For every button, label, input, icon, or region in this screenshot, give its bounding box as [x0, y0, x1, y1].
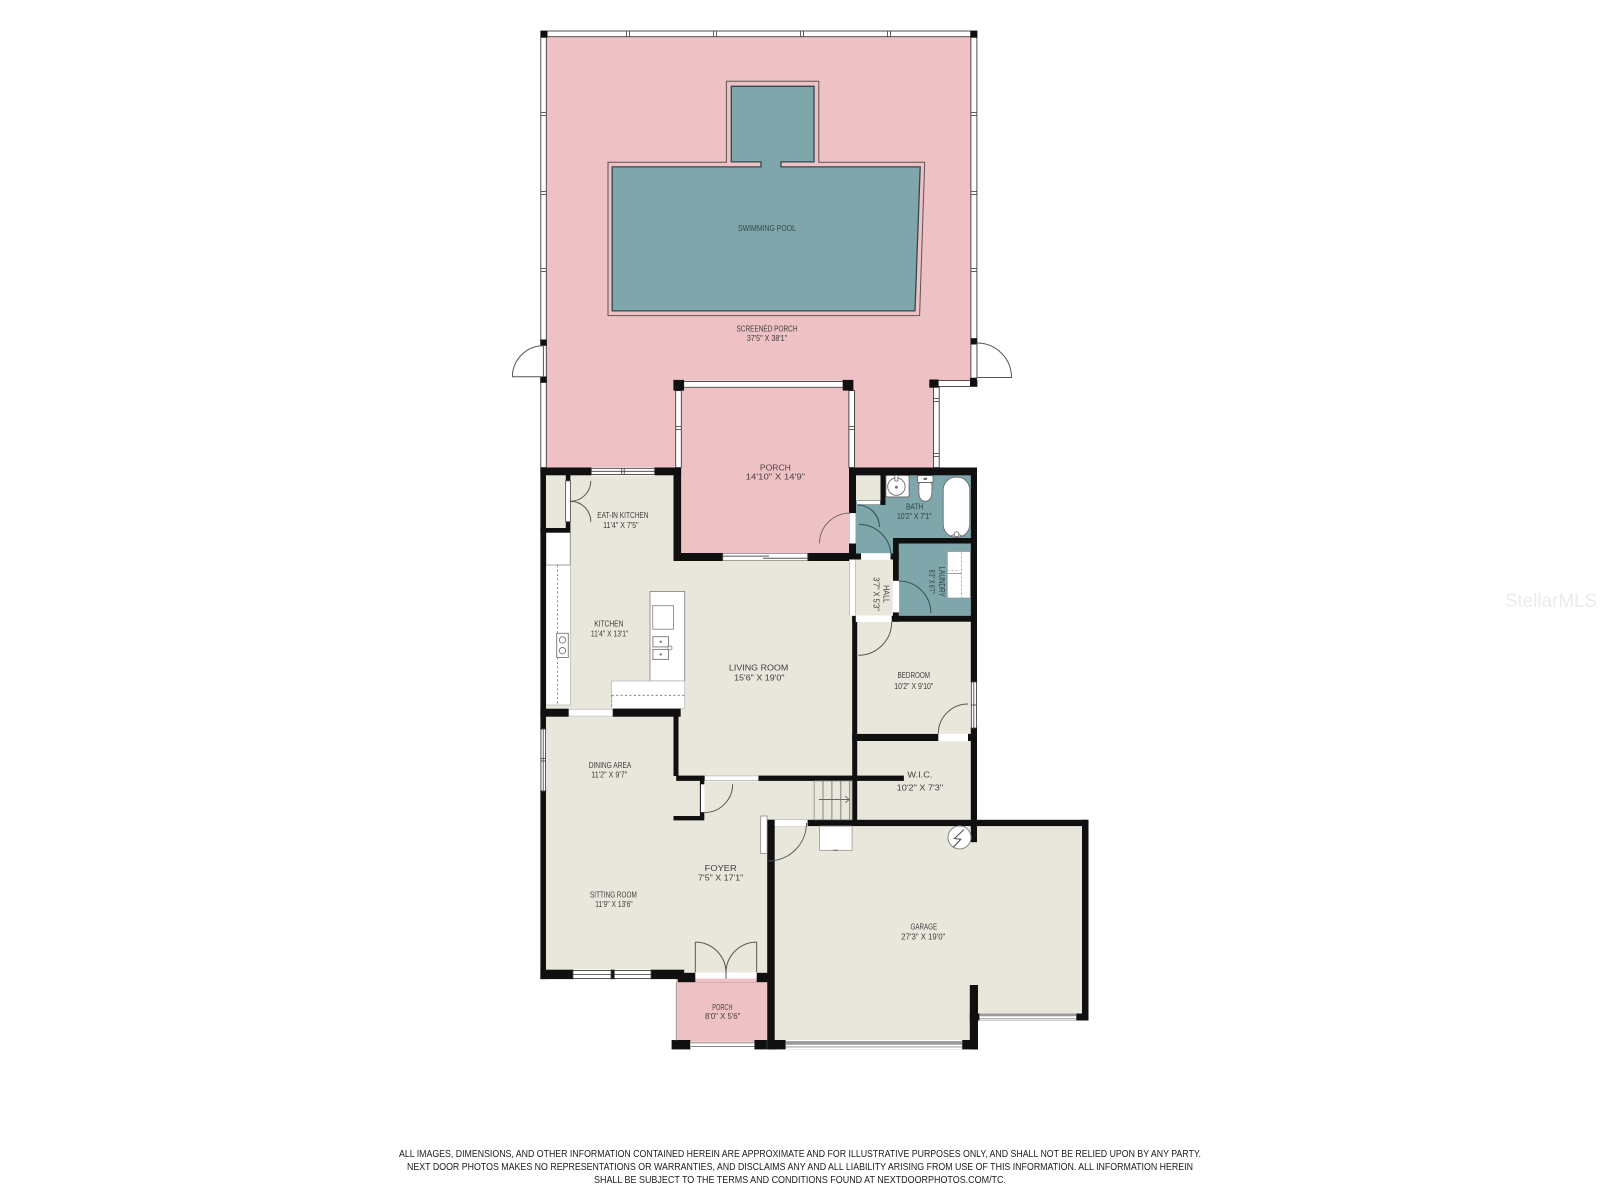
svg-text:KITCHEN: KITCHEN — [594, 619, 623, 629]
svg-text:27'3" X 19'0": 27'3" X 19'0" — [901, 932, 945, 942]
svg-text:10'2" X 7'3": 10'2" X 7'3" — [897, 783, 943, 793]
svg-text:10'2" X 7'1": 10'2" X 7'1" — [897, 511, 932, 521]
svg-text:37'5" X 38'1": 37'5" X 38'1" — [747, 333, 787, 343]
svg-text:W.I.C.: W.I.C. — [907, 770, 932, 780]
svg-text:SCREENED PORCH: SCREENED PORCH — [737, 324, 798, 334]
svg-text:ALL IMAGES, DIMENSIONS, AND OT: ALL IMAGES, DIMENSIONS, AND OTHER INFORM… — [399, 1149, 1201, 1160]
svg-text:SHALL BE SUBJECT TO THE TERMS: SHALL BE SUBJECT TO THE TERMS AND CONDIT… — [594, 1175, 1006, 1186]
svg-text:10'2" X 9'10": 10'2" X 9'10" — [894, 681, 933, 691]
svg-text:NEXT DOOR PHOTOS MAKES NO REPR: NEXT DOOR PHOTOS MAKES NO REPRESENTATION… — [407, 1162, 1193, 1173]
svg-text:15'6" X 19'0": 15'6" X 19'0" — [734, 673, 784, 683]
svg-text:14'10" X 14'9": 14'10" X 14'9" — [746, 472, 805, 482]
svg-text:LAUNDRY: LAUNDRY — [937, 567, 947, 598]
svg-text:EAT-IN KITCHEN: EAT-IN KITCHEN — [597, 510, 648, 520]
svg-text:6'3" X 6'7": 6'3" X 6'7" — [927, 570, 937, 594]
svg-text:HALL: HALL — [882, 585, 892, 603]
svg-text:8'0" X 5'6": 8'0" X 5'6" — [705, 1011, 740, 1021]
svg-text:BEDROOM: BEDROOM — [898, 670, 931, 680]
svg-text:11'9" X 13'6": 11'9" X 13'6" — [595, 899, 632, 909]
svg-text:StellarMLS: StellarMLS — [1505, 590, 1597, 612]
svg-text:11'2" X 9'7": 11'2" X 9'7" — [591, 770, 627, 780]
svg-text:3'7" X 5'3": 3'7" X 5'3" — [872, 577, 882, 611]
svg-text:BATH: BATH — [906, 502, 923, 512]
svg-text:DINING AREA: DINING AREA — [589, 760, 632, 770]
svg-text:11'4" X 7'5": 11'4" X 7'5" — [603, 520, 639, 530]
svg-text:GARAGE: GARAGE — [911, 922, 938, 932]
svg-text:11'4" X 13'1": 11'4" X 13'1" — [591, 629, 629, 639]
svg-text:LIVING ROOM: LIVING ROOM — [729, 662, 788, 672]
svg-text:SWIMMING POOL: SWIMMING POOL — [738, 223, 796, 233]
svg-text:7'5" X 17'1": 7'5" X 17'1" — [698, 872, 743, 882]
